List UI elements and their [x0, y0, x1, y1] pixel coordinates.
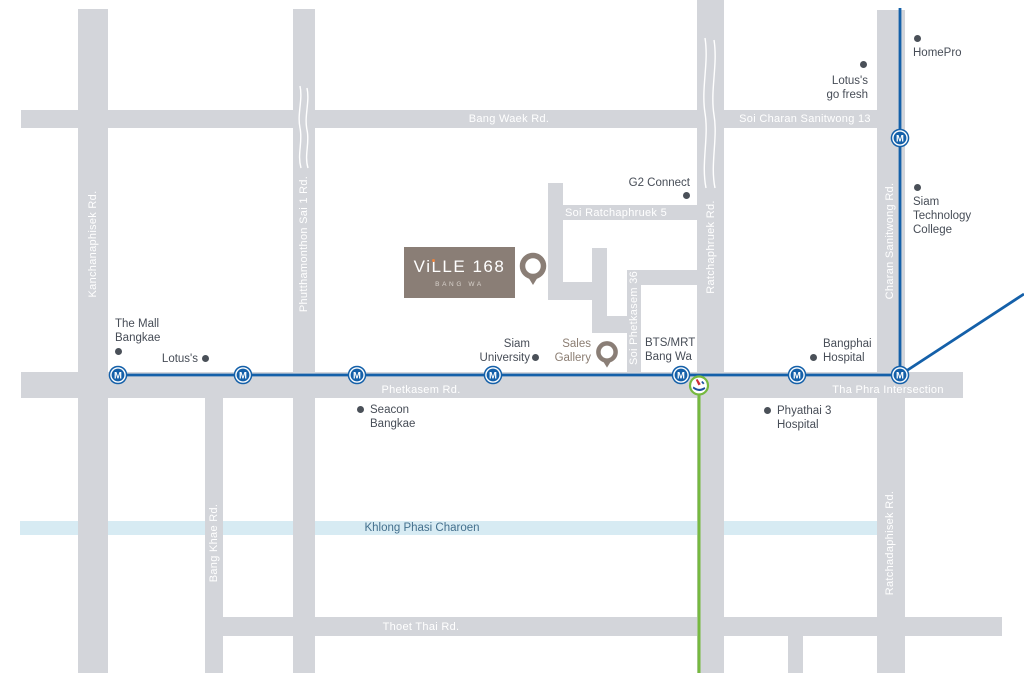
poi-label-line: Bangphai [823, 337, 872, 351]
road-label: Tha Phra Intersection [832, 384, 943, 396]
poi-label-line: Lotus's [162, 352, 198, 366]
road-label: Charan Sanitwong Rd. [884, 183, 896, 300]
road-label: Soi Ratchaphruek 5 [565, 207, 667, 219]
poi-label-line: Hospital [823, 351, 872, 365]
poi-g2-connect: G2 Connect [629, 176, 690, 190]
poi-lotuss-go-fresh: Lotus'sgo fresh [826, 74, 868, 102]
poi-marker-dot [357, 406, 364, 413]
road-south-stub [788, 636, 803, 673]
ville168-logo: ViLLE 168 BANG WA [404, 247, 515, 298]
poi-label-line: Bangkae [370, 417, 415, 431]
poi-label-line: Phyathai 3 [777, 404, 831, 418]
road-thoet-thai-rd [223, 617, 1002, 636]
poi-siam-university: SiamUniversity [480, 337, 530, 365]
poi-lotuss: Lotus's [162, 352, 198, 366]
poi-label-line: Seacon [370, 403, 415, 417]
road-label: Bang Khae Rd. [208, 504, 220, 583]
road-phutthamonthon-sai-1-rd [293, 9, 315, 673]
road-label: Ratchaphruek Rd. [705, 200, 717, 293]
road-phetkasem-rd [21, 372, 963, 398]
poi-phyathai-3-hospital: Phyathai 3Hospital [777, 404, 831, 432]
road-label: Soi Charan Sanitwong 13 [739, 113, 871, 125]
poi-label-line: College [913, 223, 971, 237]
ville168-logo-subtitle: BANG WA [435, 281, 484, 288]
poi-label-line: Lotus's [826, 74, 868, 88]
road-label: Phutthamonthon Sai 1 Rd. [298, 176, 310, 312]
road-label: Ratchadaphisek Rd. [884, 491, 896, 595]
poi-marker-dot [810, 354, 817, 361]
poi-label-line: The Mall [115, 317, 160, 331]
road-label: Phetkasem Rd. [381, 384, 460, 396]
poi-marker-dot [914, 35, 921, 42]
poi-label-line: Sales [555, 337, 591, 351]
poi-label-line: Hospital [777, 418, 831, 432]
road-label: Bang Waek Rd. [469, 113, 550, 125]
poi-marker-dot [860, 61, 867, 68]
poi-label-line: G2 Connect [629, 176, 690, 190]
poi-homepro: HomePro [913, 46, 962, 60]
poi-marker-dot [532, 354, 539, 361]
road-label: Soi Phetkasem 36 [628, 271, 640, 365]
road-label: Kanchanaphisek Rd. [87, 191, 99, 298]
poi-label-line: Siam [480, 337, 530, 351]
poi-label-line: Siam [913, 195, 971, 209]
poi-label-line: go fresh [826, 88, 868, 102]
sales-gallery-pin-icon [598, 343, 615, 367]
poi-marker-dot [914, 184, 921, 191]
project-location-pin-icon [523, 256, 544, 286]
poi-label-line: Technology [913, 209, 971, 223]
poi-the-mall-bangkae: The MallBangkae [115, 317, 160, 345]
poi-marker-dot [764, 407, 771, 414]
canal-label: Khlong Phasi Charoen [364, 522, 479, 534]
poi-sales-gallery: SalesGallery [555, 337, 591, 365]
poi-label-line: BTS/MRT [645, 336, 695, 350]
poi-seacon-bangkae: SeaconBangkae [370, 403, 415, 431]
poi-bangphai-hospital: BangphaiHospital [823, 337, 872, 365]
road-kanchanaphisek-rd [78, 9, 108, 673]
poi-label-line: Bang Wa [645, 350, 695, 364]
ville168-logo-title: ViLLE 168 [414, 258, 506, 275]
road-label: Thoet Thai Rd. [383, 621, 460, 633]
poi-label-line: Gallery [555, 351, 591, 365]
logo-orange-dot [432, 259, 435, 262]
poi-bts-mrt-bang-wa: BTS/MRTBang Wa [645, 336, 695, 364]
poi-marker-dot [202, 355, 209, 362]
poi-marker-dot [115, 348, 122, 355]
poi-marker-dot [683, 192, 690, 199]
poi-label-line: Bangkae [115, 331, 160, 345]
poi-label-line: HomePro [913, 46, 962, 60]
road-ratchaphruek-rd [697, 0, 724, 673]
poi-siam-technology-college: SiamTechnologyCollege [913, 195, 971, 237]
map-canvas: Khlong Phasi Charoen Bang Waek Rd.Soi Ch… [0, 0, 1024, 683]
poi-label-line: University [480, 351, 530, 365]
